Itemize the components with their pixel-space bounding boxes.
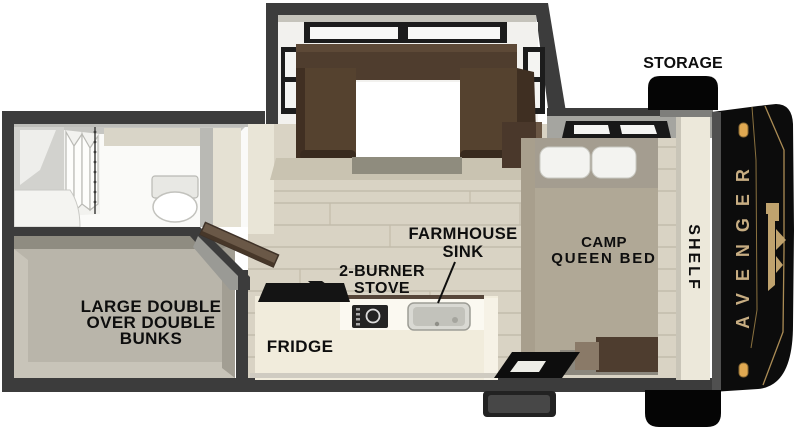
svg-text:SINK: SINK	[442, 243, 483, 261]
svg-text:STOVE: STOVE	[354, 280, 410, 297]
svg-text:STORAGE: STORAGE	[643, 55, 723, 72]
svg-text:FRIDGE: FRIDGE	[267, 337, 334, 356]
svg-text:BUNKS: BUNKS	[120, 329, 182, 348]
svg-text:AVENGER: AVENGER	[733, 157, 753, 329]
svg-text:SHELF: SHELF	[685, 224, 702, 291]
svg-text:FARMHOUSE: FARMHOUSE	[408, 225, 517, 243]
svg-text:CAMP: CAMP	[581, 234, 627, 251]
svg-text:QUEEN BED: QUEEN BED	[551, 250, 656, 267]
svg-text:2-BURNER: 2-BURNER	[339, 263, 425, 280]
